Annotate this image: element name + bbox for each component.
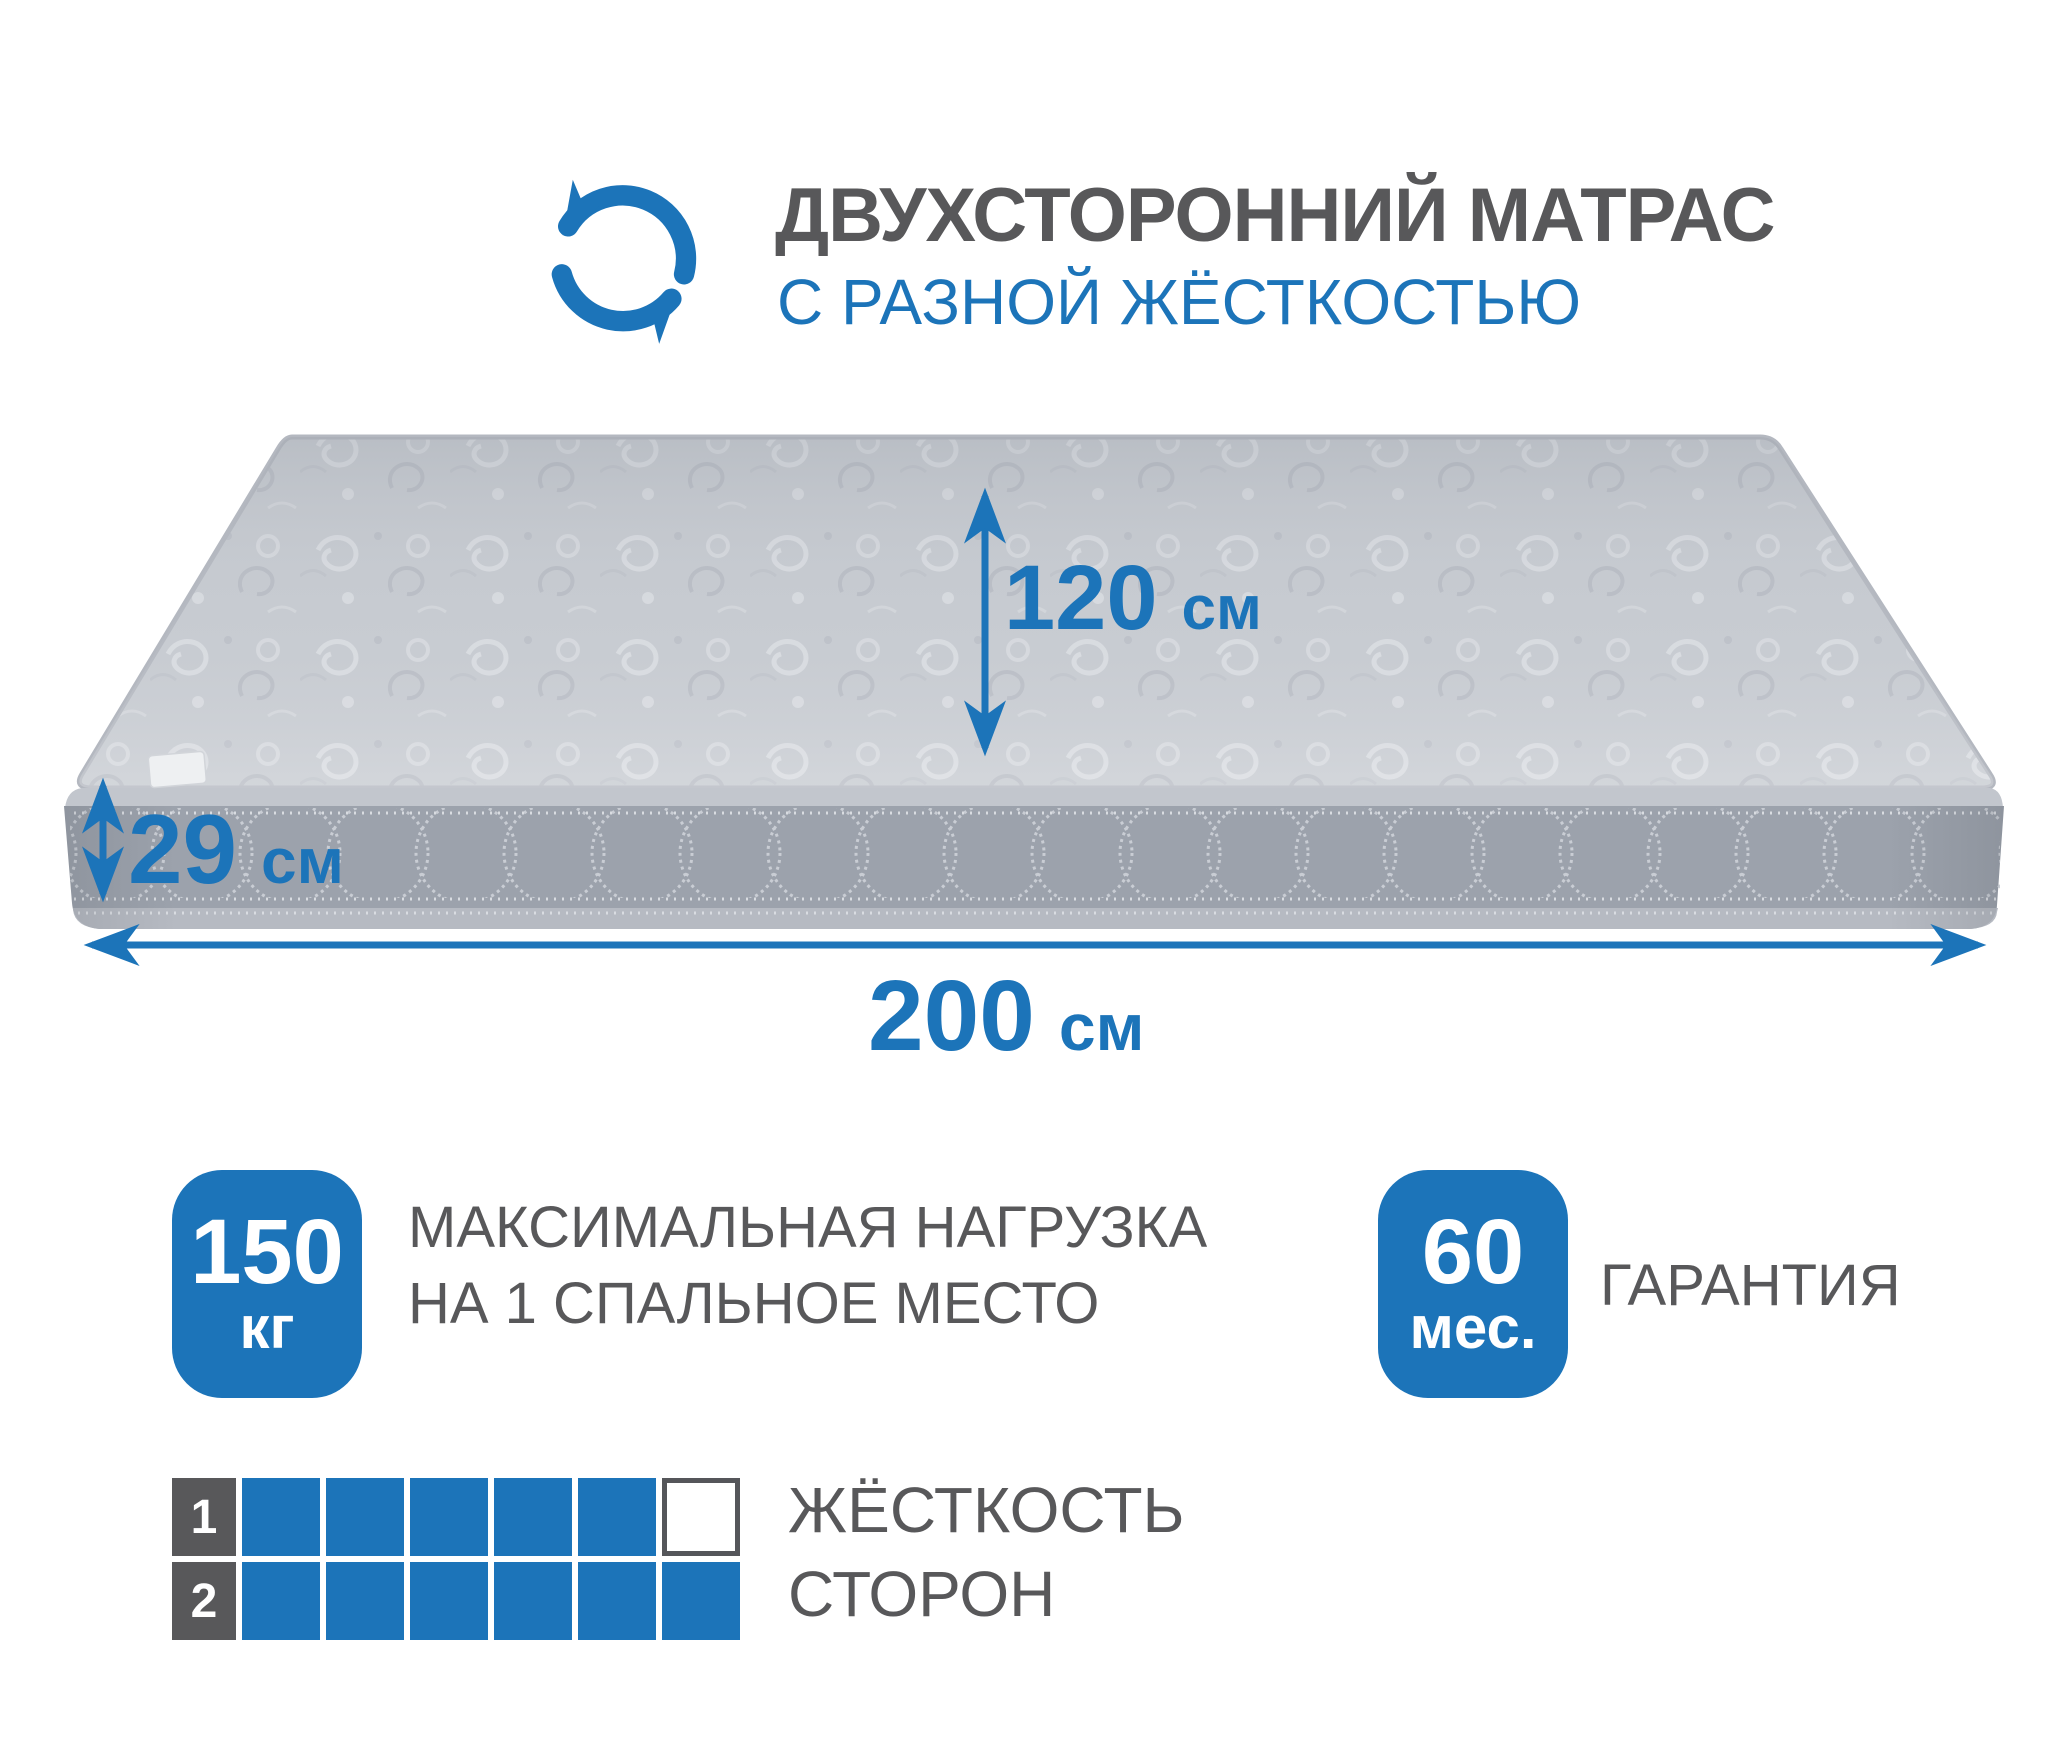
firmness-label-line1: ЖЁСТКОСТЬ: [788, 1468, 1185, 1552]
firmness-label-line2: СТОРОН: [788, 1552, 1185, 1636]
depth-value: 120: [1004, 552, 1158, 644]
firmness-side-number: 2: [172, 1562, 236, 1640]
firmness-row-side1: 1: [172, 1478, 740, 1556]
firmness-cell-filled: [494, 1478, 572, 1556]
firmness-cell-filled: [242, 1562, 320, 1640]
page-title: ДВУХСТОРОННИЙ МАТРАС: [775, 178, 1775, 254]
warranty-label: ГАРАНТИЯ: [1600, 1248, 1901, 1324]
max-load-value: 150: [190, 1209, 344, 1296]
height-unit: см: [261, 829, 344, 893]
firmness-cell-filled: [326, 1478, 404, 1556]
depth-unit: см: [1182, 578, 1262, 640]
firmness-cell-filled: [578, 1562, 656, 1640]
firmness-section: 1 2 ЖЁСТКОСТЬ СТОРОН: [172, 1478, 740, 1646]
warranty-unit: мес.: [1409, 1296, 1536, 1359]
width-dimension-label: 200 см: [868, 966, 1144, 1066]
firmness-cell-filled: [410, 1562, 488, 1640]
mattress-infographic: ДВУХСТОРОННИЙ МАТРАС С РАЗНОЙ ЖЁСТКОСТЬЮ…: [0, 0, 2048, 1757]
firmness-cell-filled: [242, 1478, 320, 1556]
max-load-badge: 150 кг: [172, 1170, 362, 1398]
firmness-cell-filled: [494, 1562, 572, 1640]
firmness-cell-filled: [410, 1478, 488, 1556]
page-subtitle: С РАЗНОЙ ЖЁСТКОСТЬЮ: [777, 270, 1581, 334]
firmness-cell-filled: [326, 1562, 404, 1640]
width-value: 200: [868, 966, 1035, 1066]
firmness-label: ЖЁСТКОСТЬ СТОРОН: [788, 1468, 1185, 1636]
rotate-arrows-icon: [512, 172, 752, 344]
width-unit: см: [1059, 994, 1145, 1060]
firmness-cell-empty: [662, 1478, 740, 1556]
max-load-label-line2: НА 1 СПАЛЬНОЕ МЕСТО: [408, 1266, 1207, 1342]
firmness-row-side2: 2: [172, 1562, 740, 1640]
max-load-label-line1: МАКСИМАЛЬНАЯ НАГРУЗКА: [408, 1190, 1207, 1266]
depth-dimension-label: 120 см: [1004, 552, 1262, 644]
warranty-badge: 60 мес.: [1378, 1170, 1568, 1398]
mattress-label-tag: [148, 751, 207, 788]
firmness-side-number: 1: [172, 1478, 236, 1556]
max-load-label: МАКСИМАЛЬНАЯ НАГРУЗКА НА 1 СПАЛЬНОЕ МЕСТ…: [408, 1190, 1207, 1342]
height-dimension-label: 29 см: [128, 800, 344, 898]
mattress-edge-band: [65, 788, 2003, 808]
height-value: 29: [128, 800, 237, 898]
warranty-value: 60: [1422, 1209, 1524, 1296]
max-load-unit: кг: [239, 1296, 294, 1359]
firmness-cell-filled: [662, 1562, 740, 1640]
firmness-cell-filled: [578, 1478, 656, 1556]
